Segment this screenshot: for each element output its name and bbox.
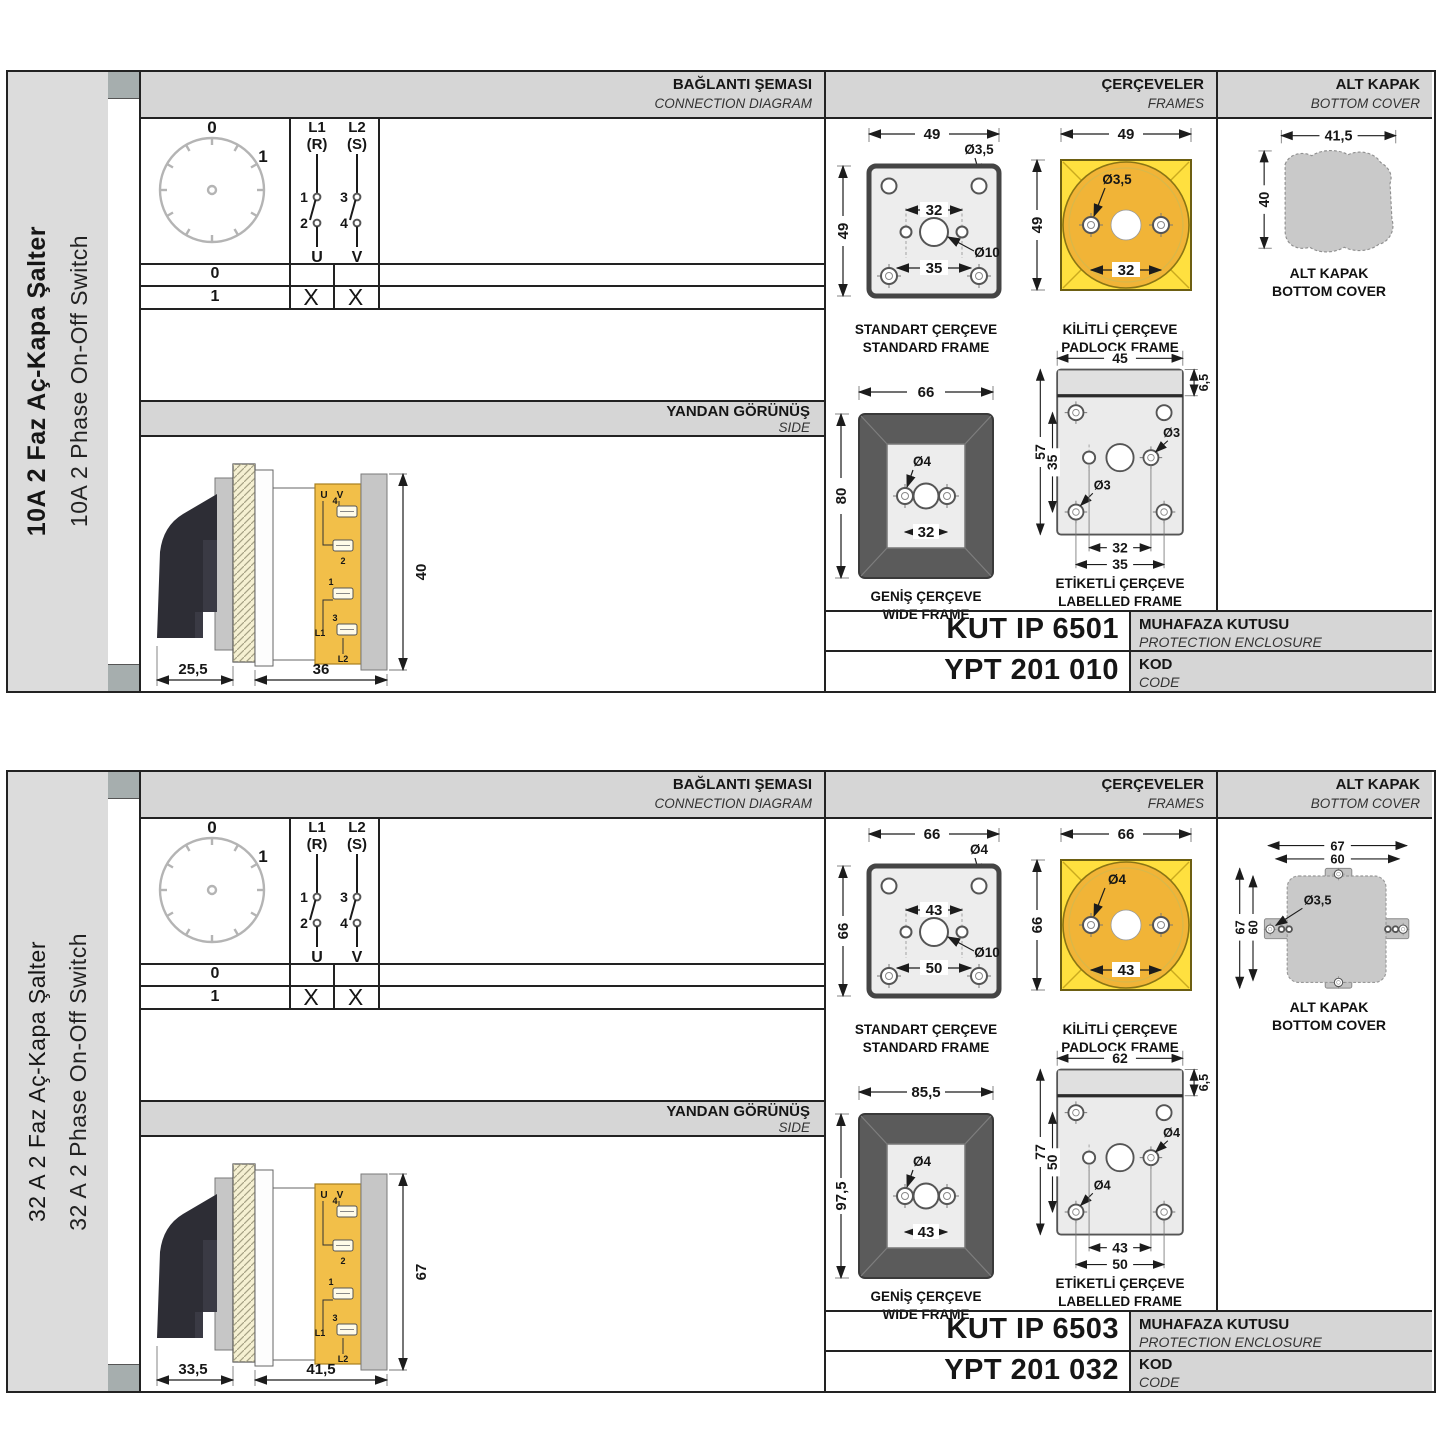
dim-frame-width: 85,5 (911, 1084, 940, 1101)
dim-band-height: 6,5 (1197, 374, 1211, 392)
product-title-en: 10A 2 Phase On-Off Switch (66, 235, 93, 527)
dim-hole-spacing: 32 (918, 524, 935, 541)
cover-outline (1285, 151, 1393, 252)
standard-frame-drawing: 66 Ø4 66 43 Ø10 50 (829, 820, 1023, 1020)
terminal-l1: L1 (315, 1328, 326, 1338)
header-cover-tr: ALT KAPAK (1216, 772, 1420, 795)
product-panel-1: 10A 2 Faz Aç-Kapa Şalter 10A 2 Phase On-… (6, 70, 1436, 693)
pole2-phase-label: (S) (347, 836, 367, 853)
side-view-title-en: SIDE (141, 1121, 810, 1135)
table-line (378, 263, 380, 310)
dim-frame-width: 45 (1112, 350, 1128, 366)
rotary-dial-diagram: 0 1 (141, 117, 289, 263)
code-label-tr: KOD (1139, 655, 1432, 674)
corner-mark (108, 1364, 139, 1391)
table-line (141, 1008, 824, 1010)
dim-hole-spacing-v: 35 (1044, 454, 1060, 470)
table-line (141, 308, 824, 310)
corner-mark (108, 772, 139, 799)
dial-position-1: 1 (258, 847, 267, 866)
code-label-cell: KOD CODE (1129, 652, 1432, 691)
header-frames-en: FRAMES (824, 795, 1204, 812)
caption-tr: KİLİTLİ ÇERÇEVE (1025, 1021, 1215, 1039)
table-line (141, 285, 824, 287)
pole1-contact-top: 1 (300, 189, 308, 205)
dim-frame-width: 49 (924, 126, 941, 143)
dim-hole-spacing: 32 (1112, 539, 1128, 555)
dim-lower-spacing: 50 (1112, 1256, 1128, 1272)
pole1-phase-label: (R) (307, 836, 328, 853)
terminal-3: 3 (332, 613, 337, 623)
labelled-frame-caption: ETİKETLİ ÇERÇEVE LABELLED FRAME (1025, 1275, 1215, 1310)
pole2-contact-top: 3 (340, 889, 348, 905)
caption-tr: ALT KAPAK (1226, 264, 1432, 282)
terminal-2: 2 (340, 556, 345, 566)
pole2-phase-label: (S) (347, 136, 367, 153)
dim-side-left: 33,5 (178, 1361, 207, 1378)
pole1-contact-bottom: 2 (300, 915, 308, 931)
switch-pole-diagram: L1 (R) 1 2 U L2 (S) 3 4 V (289, 817, 378, 963)
caption-tr: STANDART ÇERÇEVE (829, 321, 1023, 339)
section-header-band: BAĞLANTI ŞEMASI CONNECTION DIAGRAM ÇERÇE… (141, 772, 1432, 819)
header-connection-tr: BAĞLANTI ŞEMASI (141, 772, 812, 795)
dim-side-left: 25,5 (178, 661, 207, 678)
product-code: YPT 201 032 (824, 1354, 1129, 1391)
product-title-strip: 32 A 2 Faz Aç-Kapa Şalter 32 A 2 Phase O… (8, 772, 110, 1391)
padlock-frame-drawing: 49 49 Ø3,5 32 (1025, 120, 1215, 320)
terminal-3: 3 (332, 1313, 337, 1323)
dim-frame-height: 66 (1029, 917, 1046, 934)
terminal-u: U (320, 1190, 327, 1201)
terminal-4: 4 (332, 1196, 337, 1206)
header-cover-en: BOTTOM COVER (1216, 95, 1420, 112)
terminal-4: 4 (332, 496, 337, 506)
dim-frame-width: 62 (1112, 1050, 1128, 1066)
product-title-strip: 10A 2 Faz Aç-Kapa Şalter 10A 2 Phase On-… (8, 72, 110, 691)
standard-frame-caption: STANDART ÇERÇEVE STANDARD FRAME (829, 321, 1023, 356)
section-header-band: BAĞLANTI ŞEMASI CONNECTION DIAGRAM ÇERÇE… (141, 72, 1432, 119)
table-row-position: 0 (141, 265, 289, 283)
dim-hole-spacing: 43 (1112, 1239, 1128, 1255)
terminal-2: 2 (340, 1256, 345, 1266)
dim-hole-dia: Ø4 (913, 1154, 932, 1169)
section-divider (824, 772, 826, 1391)
standard-frame-drawing: 49 Ø3,5 49 32 Ø10 35 (829, 120, 1023, 320)
header-connection-diagram: BAĞLANTI ŞEMASI CONNECTION DIAGRAM (141, 72, 824, 117)
side-view-title-tr: YANDAN GÖRÜNÜŞ (141, 402, 810, 421)
dim-lower-spacing: 35 (1112, 556, 1128, 572)
header-connection-diagram: BAĞLANTI ŞEMASI CONNECTION DIAGRAM (141, 772, 824, 817)
product-panel-2: 32 A 2 Faz Aç-Kapa Şalter 32 A 2 Phase O… (6, 770, 1436, 1393)
wide-frame-drawing: 66 80 Ø4 32 (829, 380, 1023, 585)
caption-en: STANDARD FRAME (829, 339, 1023, 357)
dim-frame-width: 66 (1118, 826, 1135, 843)
dim-cover-height: 40 (1257, 192, 1273, 208)
code-label-tr: KOD (1139, 1355, 1432, 1374)
side-view-drawing: U V 4 2 1 3 L1 L2 67 33,5 41,5 (153, 1140, 453, 1388)
header-bottom-cover: ALT KAPAK BOTTOM COVER (1216, 772, 1432, 817)
table-row-position: 1 (141, 988, 289, 1006)
header-cover-en: BOTTOM COVER (1216, 795, 1420, 812)
terminal-v: V (337, 490, 344, 501)
cover-outline (1287, 876, 1386, 982)
section-divider (1216, 72, 1218, 610)
caption-tr: KİLİTLİ ÇERÇEVE (1025, 321, 1215, 339)
dim-lower-spacing: 35 (926, 260, 943, 277)
dim-frame-height: 80 (833, 488, 850, 505)
pole2-output-label: V (352, 249, 363, 263)
dim-lower-spacing: 50 (926, 960, 943, 977)
padlock-frame-drawing: 66 66 Ø4 43 (1025, 820, 1215, 1020)
dim-frame-height: 49 (835, 223, 852, 240)
terminal-1: 1 (328, 1277, 333, 1287)
dial-position-1: 1 (258, 147, 267, 166)
panel-main: BAĞLANTI ŞEMASI CONNECTION DIAGRAM ÇERÇE… (141, 72, 1432, 691)
dim-hole-dia: Ø4 (1163, 1126, 1180, 1140)
side-view-title-tr: YANDAN GÖRÜNÜŞ (141, 1102, 810, 1121)
caption-tr: ETİKETLİ ÇERÇEVE (1025, 575, 1215, 593)
dim-cover-height-inner: 60 (1246, 920, 1261, 934)
dim-frame-height: 49 (1029, 217, 1046, 234)
contact-state-v: X (333, 286, 378, 309)
side-view-band: YANDAN GÖRÜNÜŞ SIDE (141, 400, 824, 437)
enclosure-code: KUT IP 6501 (824, 613, 1129, 650)
dim-hole-spacing: 43 (926, 902, 943, 919)
catalog-page: { "colors":{"accent_yellow":"#ffe03f","a… (0, 0, 1445, 1445)
dim-frame-width: 49 (1118, 126, 1135, 143)
caption-tr: GENİŞ ÇERÇEVE (829, 1288, 1023, 1306)
pole2-contact-bottom: 4 (340, 915, 348, 931)
product-title-en: 32 A 2 Phase On-Off Switch (65, 933, 92, 1231)
dim-hole-dia: Ø3 (1163, 426, 1180, 440)
side-view-band: YANDAN GÖRÜNÜŞ SIDE (141, 1100, 824, 1137)
pole2-contact-top: 3 (340, 189, 348, 205)
caption-en: BOTTOM COVER (1226, 1016, 1432, 1034)
caption-en: STANDARD FRAME (829, 1039, 1023, 1057)
switch-pole-diagram: L1 (R) 1 2 U L2 (S) 3 4 V (289, 117, 378, 263)
corner-mark (108, 72, 139, 99)
dim-frame-height: 66 (835, 923, 852, 940)
dim-corner-hole-dia: Ø4 (970, 842, 989, 857)
header-frames: ÇERÇEVELER FRAMES (824, 772, 1216, 817)
bottom-cover-caption: ALT KAPAK BOTTOM COVER (1226, 998, 1432, 1034)
header-cover-tr: ALT KAPAK (1216, 72, 1420, 95)
pole2-line-label: L2 (348, 819, 366, 836)
dim-hole-spacing: 32 (926, 202, 943, 219)
header-connection-en: CONNECTION DIAGRAM (141, 95, 812, 112)
bottom-cover-drawing: 67 60 67 60 Ø3,5 (1226, 838, 1432, 990)
dim-corner-hole-dia: Ø3,5 (964, 142, 994, 157)
dim-hole-dia: Ø3,5 (1102, 172, 1132, 187)
cell-divider (378, 117, 380, 263)
dim-hole-spacing: 43 (918, 1224, 935, 1241)
bottom-cover-caption: ALT KAPAK BOTTOM COVER (1226, 264, 1432, 300)
bottom-cover-drawing: 41,5 40 (1226, 124, 1432, 258)
contact-state-u: X (289, 286, 333, 309)
pole2-line-label: L2 (348, 119, 366, 136)
dim-tab-hole-dia: Ø3,5 (1304, 893, 1332, 908)
caption-en: LABELLED FRAME (1025, 593, 1215, 611)
terminal-l2: L2 (338, 654, 349, 664)
enclosure-label-en: PROTECTION ENCLOSURE (1139, 634, 1432, 651)
caption-en: BOTTOM COVER (1226, 282, 1432, 300)
dim-hole-dia: Ø3 (1094, 479, 1111, 493)
enclosure-label-tr: MUHAFAZA KUTUSU (1139, 615, 1432, 634)
dim-frame-width: 66 (918, 384, 935, 401)
dim-center-hole-dia: Ø10 (974, 245, 1000, 260)
product-title-tr: 10A 2 Faz Aç-Kapa Şalter (23, 226, 52, 536)
caption-en: LABELLED FRAME (1025, 1293, 1215, 1311)
dim-side-right: 36 (313, 661, 330, 678)
table-line (378, 963, 380, 1010)
contact-state-u: X (289, 986, 333, 1009)
dim-center-hole-dia: Ø10 (974, 945, 1000, 960)
pole1-line-label: L1 (308, 119, 326, 136)
caption-tr: ALT KAPAK (1226, 998, 1432, 1016)
cell-divider (378, 817, 380, 963)
dim-cover-width-inner: 60 (1330, 852, 1344, 867)
labelled-frame-drawing: 62 6,5 Ø4 Ø4 77 50 (1025, 1047, 1215, 1272)
dim-side-height: 40 (413, 564, 430, 581)
pole1-output-label: U (311, 949, 323, 963)
contact-state-v: X (333, 986, 378, 1009)
enclosure-label-en: PROTECTION ENCLOSURE (1139, 1334, 1432, 1351)
wide-frame-drawing: 85,5 97,5 Ø4 43 (829, 1080, 1023, 1285)
caption-tr: GENİŞ ÇERÇEVE (829, 588, 1023, 606)
pole1-phase-label: (R) (307, 136, 328, 153)
header-frames-tr: ÇERÇEVELER (824, 772, 1204, 795)
header-connection-en: CONNECTION DIAGRAM (141, 795, 812, 812)
labelled-frame-drawing: 45 6,5 Ø3 Ø3 57 35 (1025, 347, 1215, 572)
dim-hole-spacing: 43 (1118, 962, 1135, 979)
section-divider (824, 72, 826, 691)
spacer-column (108, 772, 141, 1391)
enclosure-label-tr: MUHAFAZA KUTUSU (1139, 1315, 1432, 1334)
enclosure-label-cell: MUHAFAZA KUTUSU PROTECTION ENCLOSURE (1129, 1312, 1432, 1350)
panel-main: BAĞLANTI ŞEMASI CONNECTION DIAGRAM ÇERÇE… (141, 772, 1432, 1391)
labelled-frame-caption: ETİKETLİ ÇERÇEVE LABELLED FRAME (1025, 575, 1215, 610)
pole2-contact-bottom: 4 (340, 215, 348, 231)
product-code: YPT 201 010 (824, 654, 1129, 691)
dim-side-height: 67 (413, 1264, 430, 1281)
caption-tr: STANDART ÇERÇEVE (829, 1021, 1023, 1039)
dim-hole-dia: Ø4 (913, 454, 932, 469)
dim-hole-dia: Ø4 (1094, 1179, 1111, 1193)
dim-frame-height: 97,5 (833, 1181, 850, 1210)
dim-frame-width: 66 (924, 826, 941, 843)
header-frames-en: FRAMES (824, 95, 1204, 112)
header-connection-tr: BAĞLANTI ŞEMASI (141, 72, 812, 95)
header-bottom-cover: ALT KAPAK BOTTOM COVER (1216, 72, 1432, 117)
table-row-position: 0 (141, 965, 289, 983)
pole1-contact-bottom: 2 (300, 215, 308, 231)
side-view-drawing: U V 4 2 1 3 L1 L2 40 25,5 36 (153, 440, 453, 688)
standard-frame-caption: STANDART ÇERÇEVE STANDARD FRAME (829, 1021, 1023, 1056)
dim-band-height: 6,5 (1197, 1074, 1211, 1092)
pole1-contact-top: 1 (300, 889, 308, 905)
pole2-output-label: V (352, 949, 363, 963)
pole1-line-label: L1 (308, 819, 326, 836)
side-view-title-en: SIDE (141, 421, 810, 435)
dim-hole-spacing-v: 50 (1044, 1154, 1060, 1170)
spacer-column (108, 72, 141, 691)
section-divider (1216, 772, 1218, 1310)
table-line (141, 985, 824, 987)
dim-side-right: 41,5 (306, 1361, 335, 1378)
table-row-position: 1 (141, 288, 289, 306)
product-title-tr: 32 A 2 Faz Aç-Kapa Şalter (24, 941, 51, 1222)
code-label-en: CODE (1139, 1374, 1432, 1391)
dial-position-0: 0 (207, 818, 216, 837)
code-label-cell: KOD CODE (1129, 1352, 1432, 1391)
header-frames-tr: ÇERÇEVELER (824, 72, 1204, 95)
terminal-v: V (337, 1190, 344, 1201)
dim-cover-width: 41,5 (1325, 128, 1353, 144)
code-label-en: CODE (1139, 674, 1432, 691)
dim-hole-dia: Ø4 (1108, 872, 1127, 887)
terminal-l2: L2 (338, 1354, 349, 1364)
rotary-dial-diagram: 0 1 (141, 817, 289, 963)
dial-position-0: 0 (207, 118, 216, 137)
enclosure-code: KUT IP 6503 (824, 1313, 1129, 1350)
header-frames: ÇERÇEVELER FRAMES (824, 72, 1216, 117)
terminal-u: U (320, 490, 327, 501)
terminal-1: 1 (328, 577, 333, 587)
terminal-l1: L1 (315, 628, 326, 638)
dim-hole-spacing: 32 (1118, 262, 1135, 279)
caption-tr: ETİKETLİ ÇERÇEVE (1025, 1275, 1215, 1293)
corner-mark (108, 664, 139, 691)
pole1-output-label: U (311, 249, 323, 263)
enclosure-label-cell: MUHAFAZA KUTUSU PROTECTION ENCLOSURE (1129, 612, 1432, 650)
